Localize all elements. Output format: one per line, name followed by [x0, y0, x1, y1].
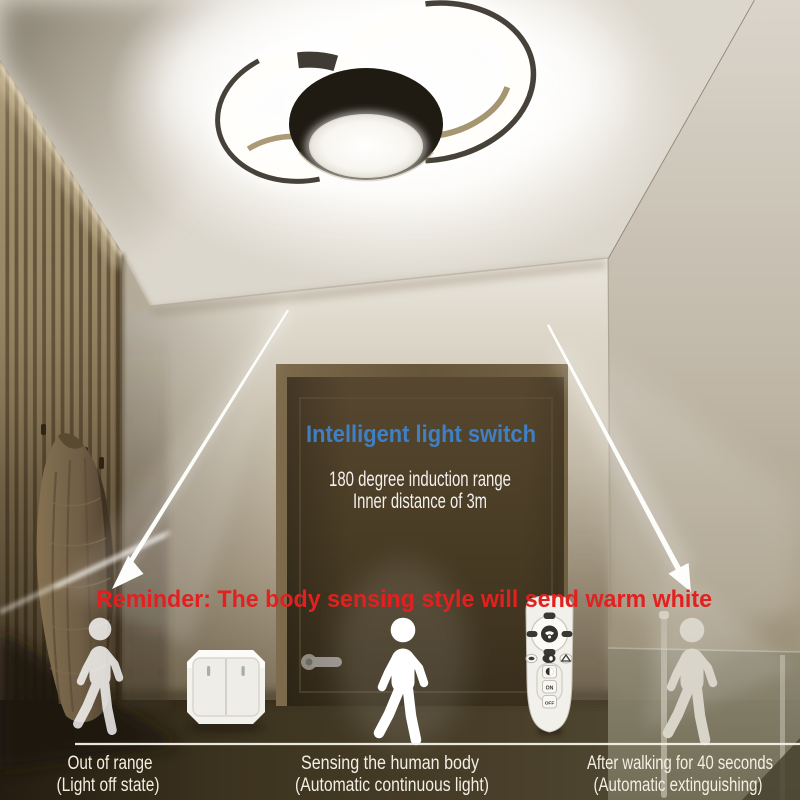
svg-text:Intelligent light switch: Intelligent light switch — [306, 421, 536, 448]
svg-text:180 degree induction range: 180 degree induction range — [329, 468, 511, 491]
svg-text:Reminder: The body sensing sty: Reminder: The body sensing style will se… — [96, 586, 712, 613]
svg-text:Inner distance of 3m: Inner distance of 3m — [353, 490, 487, 513]
svg-text:OFF: OFF — [545, 701, 555, 707]
svg-text:(Automatic continuous light): (Automatic continuous light) — [295, 775, 489, 796]
svg-text:(Light off state): (Light off state) — [57, 775, 160, 796]
svg-text:ON: ON — [546, 686, 554, 692]
svg-text:After walking for 40 seconds: After walking for 40 seconds — [587, 753, 773, 774]
svg-text:(Automatic extinguishing): (Automatic extinguishing) — [594, 775, 763, 796]
svg-text:Out of range: Out of range — [68, 753, 153, 774]
svg-text:Sensing the human body: Sensing the human body — [301, 753, 479, 774]
